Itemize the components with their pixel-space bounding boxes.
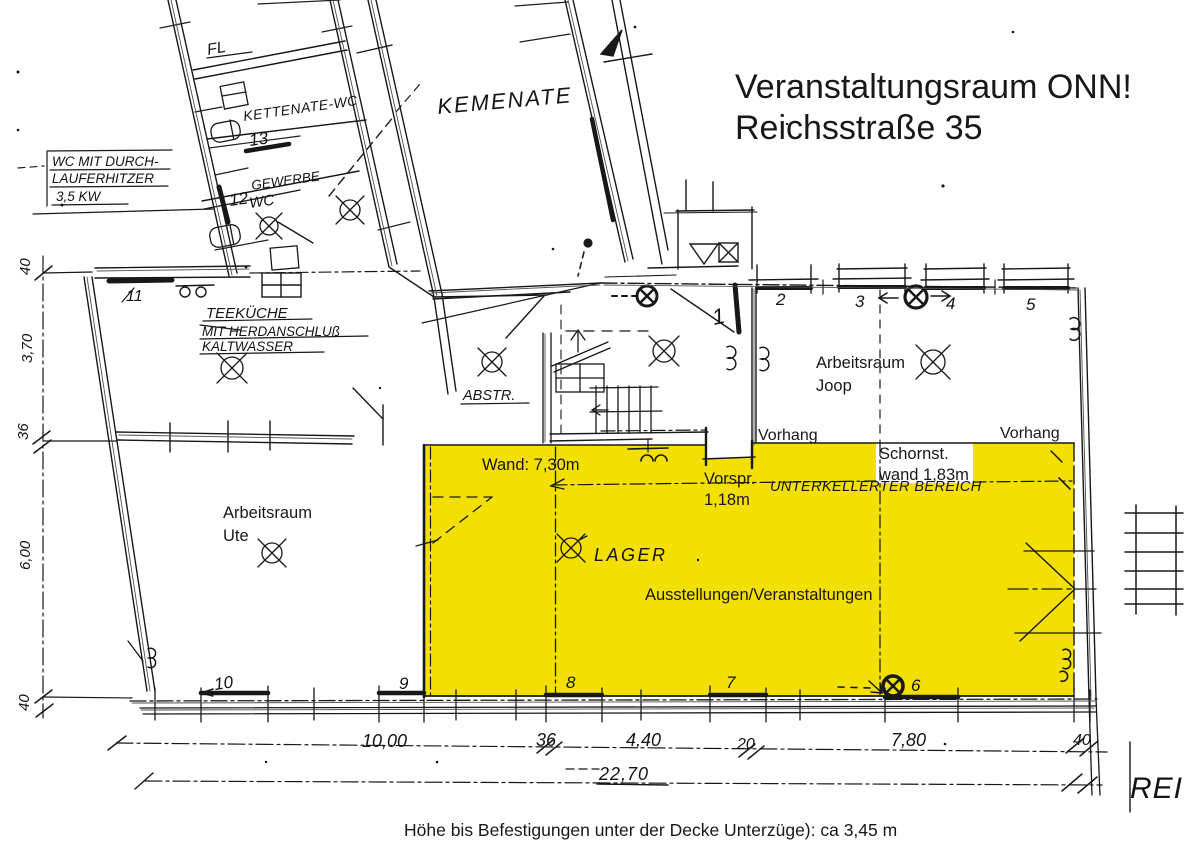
- svg-text:Reichsstraße 35: Reichsstraße 35: [735, 109, 983, 147]
- svg-text:2: 2: [775, 290, 786, 309]
- svg-text:40: 40: [16, 694, 33, 711]
- svg-text:13: 13: [248, 128, 270, 150]
- svg-text:Wand: 7,30m: Wand: 7,30m: [482, 456, 580, 474]
- svg-text:5: 5: [1026, 295, 1036, 314]
- svg-text:1,18m: 1,18m: [704, 491, 750, 509]
- svg-text:UNTERKELLERTER BEREICH: UNTERKELLERTER BEREICH: [770, 479, 982, 495]
- svg-text:Arbeitsraum: Arbeitsraum: [816, 354, 905, 372]
- svg-text:LAGER: LAGER: [594, 545, 668, 565]
- svg-text:3,70: 3,70: [19, 333, 36, 363]
- svg-text:6,00: 6,00: [17, 540, 34, 570]
- svg-text:40: 40: [17, 258, 34, 275]
- svg-text:3,5 KW: 3,5 KW: [56, 189, 102, 204]
- svg-text:ABSTR.: ABSTR.: [462, 388, 515, 404]
- svg-text:10: 10: [213, 672, 235, 694]
- svg-text:LAUFERHITZER: LAUFERHITZER: [52, 171, 154, 186]
- svg-text:Joop: Joop: [816, 377, 852, 395]
- svg-text:12: 12: [228, 188, 250, 210]
- svg-text:7: 7: [726, 673, 736, 692]
- svg-text:KALTWASSER: KALTWASSER: [202, 339, 293, 354]
- svg-text:4,40: 4,40: [626, 730, 661, 750]
- svg-text:11: 11: [126, 288, 143, 305]
- svg-text:7,80: 7,80: [891, 730, 926, 750]
- svg-text:9: 9: [399, 674, 409, 693]
- svg-text:Schornst.: Schornst.: [879, 445, 949, 463]
- svg-text:20: 20: [736, 736, 755, 753]
- svg-text:4: 4: [946, 294, 955, 313]
- svg-text:36: 36: [15, 423, 32, 440]
- svg-text:WC MIT DURCH-: WC MIT DURCH-: [52, 154, 159, 169]
- svg-text:3: 3: [855, 292, 865, 311]
- svg-text:36: 36: [536, 730, 557, 750]
- svg-text:40: 40: [1073, 732, 1091, 749]
- svg-text:6: 6: [911, 676, 921, 695]
- svg-text:8: 8: [566, 673, 576, 692]
- svg-text:Arbeitsraum: Arbeitsraum: [223, 504, 312, 522]
- svg-text:Vorhang: Vorhang: [758, 427, 818, 444]
- svg-text:REI: REI: [1130, 772, 1183, 805]
- svg-text:WC: WC: [248, 192, 275, 212]
- svg-text:Höhe bis Befestigungen unter d: Höhe bis Befestigungen unter der Decke U…: [404, 820, 897, 840]
- svg-text:Vorhang: Vorhang: [1000, 425, 1060, 442]
- svg-text:22,70: 22,70: [598, 764, 649, 784]
- svg-text:10,00: 10,00: [362, 731, 407, 751]
- svg-text:Ute: Ute: [223, 527, 249, 545]
- svg-text:Vorspr.: Vorspr.: [704, 470, 755, 488]
- svg-text:Ausstellungen/Veranstaltungen: Ausstellungen/Veranstaltungen: [645, 586, 873, 604]
- svg-text:Veranstaltungsraum ONN!: Veranstaltungsraum ONN!: [735, 68, 1132, 106]
